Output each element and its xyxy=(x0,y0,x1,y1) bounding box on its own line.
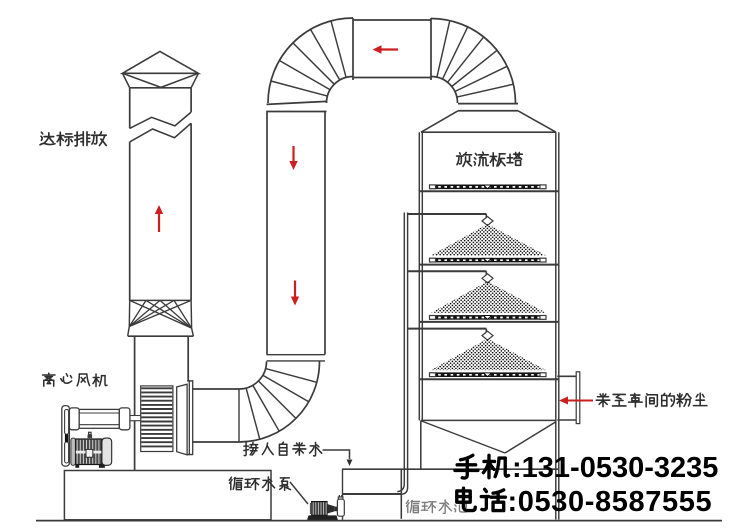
svg-text::0530-8587555: :0530-8587555 xyxy=(508,486,713,518)
svg-text::131-0530-3235: :131-0530-3235 xyxy=(512,452,718,484)
